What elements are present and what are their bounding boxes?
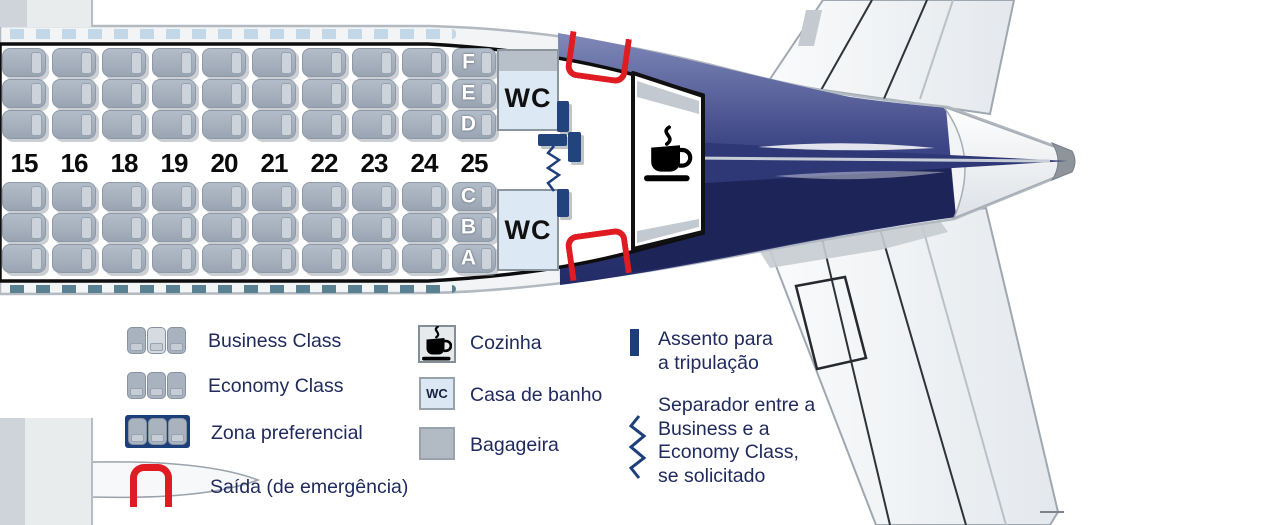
seat: F [452, 48, 496, 77]
seat [2, 244, 46, 273]
seat [52, 48, 96, 77]
seat [52, 244, 96, 273]
seat [202, 213, 246, 242]
legend-separator-label: Separador entre a Business e a Economy C… [658, 394, 818, 488]
seat-letter: B [453, 215, 484, 239]
seat-letter: C [453, 184, 484, 208]
seat [402, 79, 446, 108]
emergency-exit-icon [130, 464, 172, 507]
seat [102, 182, 146, 211]
seat [152, 182, 196, 211]
legend-crew-seat-label: Assento para a tripulação [658, 328, 788, 375]
seat [352, 244, 396, 273]
crew-seat-icon [630, 329, 639, 356]
seat [402, 48, 446, 77]
seat: C [452, 182, 496, 211]
seat [52, 79, 96, 108]
seat-letter: D [453, 112, 484, 136]
crew-seat [557, 189, 569, 217]
separator-zigzag-icon [628, 414, 648, 480]
row-number: 23 [352, 148, 396, 179]
seat [102, 48, 146, 77]
seat: B [452, 213, 496, 242]
seat [102, 244, 146, 273]
seat [252, 48, 296, 77]
seat: A [452, 244, 496, 273]
emergency-exit-lower [564, 227, 632, 281]
legend-business-label: Business Class [208, 330, 341, 353]
legend-preferential-label: Zona preferencial [211, 422, 363, 445]
lavatory-label: WC [505, 83, 552, 114]
seat [2, 182, 46, 211]
seat [152, 79, 196, 108]
row-number: 19 [152, 148, 196, 179]
coffee-cup-icon [422, 326, 452, 362]
legend-galley-label: Cozinha [470, 332, 542, 355]
lavatory-label: WC [505, 215, 552, 246]
seat [402, 182, 446, 211]
seat [352, 213, 396, 242]
preferential-zone-icon [125, 415, 190, 448]
business-class-icon [127, 327, 186, 354]
seat-letter: E [453, 81, 484, 105]
wing-upper-crop [0, 0, 93, 27]
legend-lavatory-label: Casa de banho [470, 384, 602, 407]
seat [252, 110, 296, 139]
seat [2, 48, 46, 77]
row-number: 25 [452, 148, 496, 179]
seat [252, 79, 296, 108]
seat-letter: F [453, 50, 484, 74]
seat [2, 213, 46, 242]
legend-economy-label: Economy Class [208, 375, 343, 398]
seat [52, 110, 96, 139]
seat [152, 213, 196, 242]
lavatory-lower: WC [497, 189, 559, 271]
seat [352, 182, 396, 211]
seat [402, 213, 446, 242]
seat [152, 110, 196, 139]
storage-icon [419, 427, 455, 460]
row-number: 18 [102, 148, 146, 179]
seat [202, 110, 246, 139]
seat [252, 182, 296, 211]
seat [402, 110, 446, 139]
seat [352, 110, 396, 139]
wing-lower-crop [0, 418, 93, 525]
class-separator-zigzag [546, 145, 562, 193]
seat [2, 110, 46, 139]
seat [302, 213, 346, 242]
row-number: 16 [52, 148, 96, 179]
seat [302, 48, 346, 77]
seat [252, 244, 296, 273]
seat [152, 48, 196, 77]
wc-icon-label: WC [426, 386, 448, 401]
seat [352, 48, 396, 77]
seat: E [452, 79, 496, 108]
seat [202, 48, 246, 77]
seat: D [452, 110, 496, 139]
row-number: 22 [302, 148, 346, 179]
seat [352, 79, 396, 108]
seat [152, 244, 196, 273]
seat [102, 79, 146, 108]
row-number: 24 [402, 148, 446, 179]
lavatory-upper: WC [497, 49, 559, 131]
seat [252, 213, 296, 242]
seat [302, 244, 346, 273]
seat [52, 182, 96, 211]
galley-icon [418, 325, 456, 363]
crew-seat [568, 132, 581, 162]
seat [52, 213, 96, 242]
window-band-bottom [4, 285, 456, 293]
seat [102, 213, 146, 242]
seat [302, 182, 346, 211]
seat [202, 244, 246, 273]
lavatory-icon: WC [419, 377, 455, 410]
seat [402, 244, 446, 273]
legend-exit-label: Saída (de emergência) [210, 476, 408, 499]
seat-letter: A [453, 246, 484, 270]
galley-unit [633, 73, 703, 249]
seat [2, 79, 46, 108]
seat [302, 110, 346, 139]
row-number: 15 [2, 148, 46, 179]
seatmap-diagram: 151618192021222324FEDCBA25 WC WC Busines… [0, 0, 1264, 525]
seat [202, 79, 246, 108]
seat [202, 182, 246, 211]
crew-seat [557, 101, 569, 132]
legend-storage-label: Bagageira [470, 434, 559, 457]
row-number: 20 [202, 148, 246, 179]
seat [302, 79, 346, 108]
window-band-top [4, 29, 456, 39]
seat [102, 110, 146, 139]
emergency-exit-upper [564, 31, 632, 85]
economy-class-icon [127, 372, 186, 399]
row-number: 21 [252, 148, 296, 179]
